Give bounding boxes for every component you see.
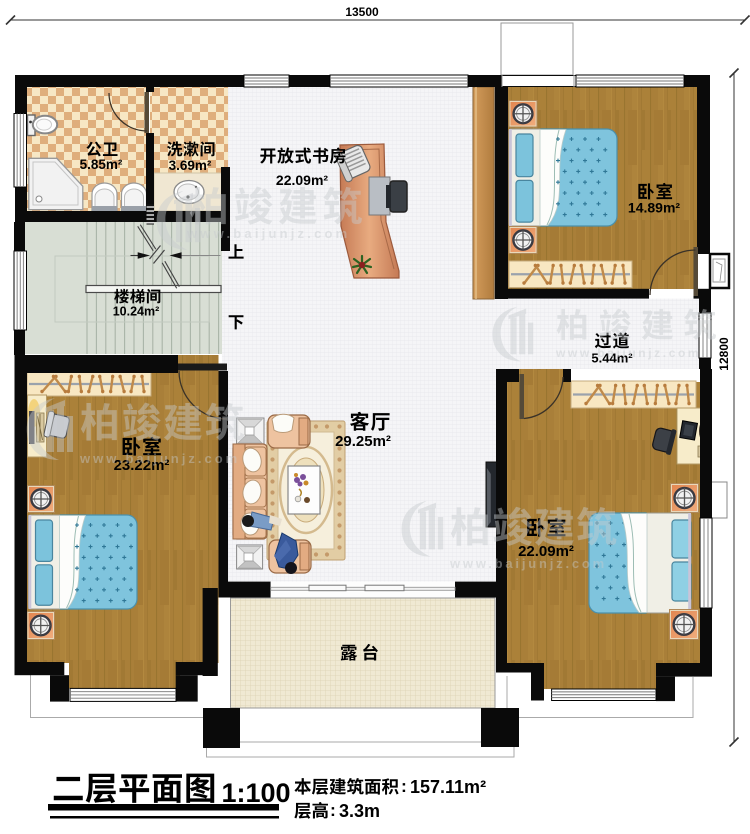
svg-text:www.baijunjz.com: www.baijunjz.com bbox=[79, 451, 240, 466]
svg-text:13500: 13500 bbox=[345, 5, 379, 19]
svg-text:3.3m: 3.3m bbox=[339, 801, 380, 821]
svg-text:12800: 12800 bbox=[717, 337, 731, 371]
svg-text:157.11m²: 157.11m² bbox=[410, 777, 486, 797]
svg-text:10.24m²: 10.24m² bbox=[113, 305, 160, 319]
svg-text:1:100: 1:100 bbox=[221, 778, 290, 808]
svg-text:www.baijunjz.com: www.baijunjz.com bbox=[186, 226, 350, 241]
svg-text:www.baijunjz.com: www.baijunjz.com bbox=[449, 556, 607, 571]
svg-text:22.09m²: 22.09m² bbox=[276, 172, 328, 188]
svg-text:www.baijunjz.com: www.baijunjz.com bbox=[555, 346, 701, 360]
svg-text::: : bbox=[330, 800, 336, 820]
svg-text:14.89m²: 14.89m² bbox=[628, 200, 680, 216]
svg-text:5.85m²: 5.85m² bbox=[80, 157, 123, 172]
svg-text:3.69m²: 3.69m² bbox=[169, 158, 212, 173]
svg-text:29.25m²: 29.25m² bbox=[335, 433, 391, 450]
svg-text::: : bbox=[401, 776, 407, 796]
